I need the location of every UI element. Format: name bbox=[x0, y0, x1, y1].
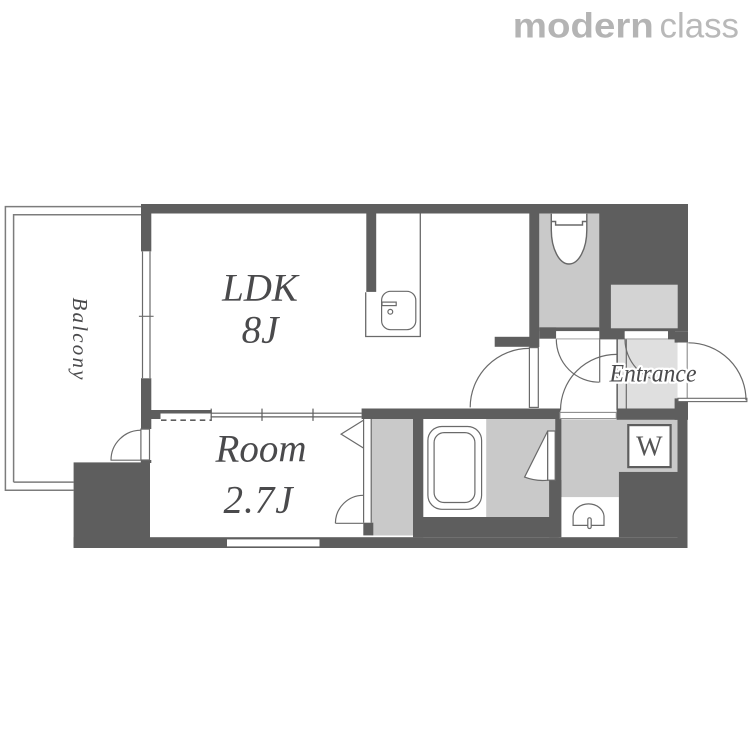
svg-text:Room: Room bbox=[215, 428, 307, 471]
svg-text:8J: 8J bbox=[242, 308, 281, 351]
svg-text:W: W bbox=[636, 432, 663, 463]
svg-text:class: class bbox=[660, 7, 740, 46]
svg-text:2.7J: 2.7J bbox=[223, 479, 294, 522]
svg-text:Balcony: Balcony bbox=[68, 298, 92, 382]
svg-text:modern: modern bbox=[513, 7, 654, 46]
svg-text:Entrance: Entrance bbox=[609, 359, 697, 388]
svg-text:LDK: LDK bbox=[221, 267, 300, 310]
